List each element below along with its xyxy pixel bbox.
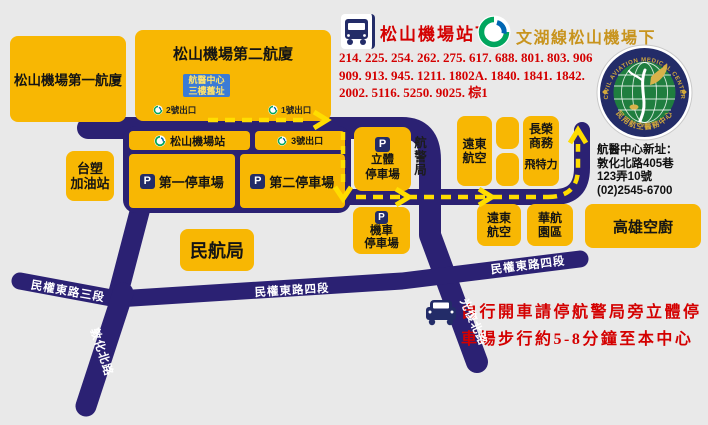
parking-area-container: 松山機場站 3號出口 P 第一停車場 P 第二停車場 — [123, 126, 351, 213]
camc-logo: CIVIL AVIATION MEDICAL CENTER 民用航空醫務中心 — [596, 44, 693, 146]
building-gas-station: 台塑 加油站 — [66, 151, 114, 201]
gas-line1: 台塑 — [77, 161, 103, 176]
cal-line1: 華航 — [538, 211, 562, 225]
road-label-minquan-e3: 民權東路三段 — [25, 276, 111, 306]
old-site-box: 航醫中心 三樓舊址 — [183, 74, 230, 97]
bus-routes-line2: 909. 913. 945. 1211. 1802A. 1840. 1841. … — [339, 67, 593, 85]
route-arrow-mid-1 — [396, 189, 409, 205]
multilevel-line2: 停車場 — [365, 169, 400, 182]
building-small-block-1 — [496, 117, 519, 149]
metro-icon — [277, 136, 287, 146]
parking-icon: P — [375, 211, 388, 224]
building-kaohsiung-catering: 高雄空廚 — [585, 204, 701, 248]
building-fareast-air-bottom: 遠東 航空 — [477, 204, 521, 246]
parking-lot1: P 第一停車場 — [129, 154, 235, 208]
building-moto-parking: P 機車 停車場 — [353, 207, 410, 254]
eva-line2: 商務 — [529, 137, 553, 151]
parking-lot2-label: 第二停車場 — [269, 172, 334, 191]
address-line1: 航醫中心新址： — [597, 144, 678, 158]
route-arrow-up — [570, 130, 586, 143]
building-terminal2: 松山機場第二航廈 航醫中心 三樓舊址 2號出口 1號出口 — [135, 30, 331, 121]
kaohsiung-label: 高雄空廚 — [613, 216, 673, 237]
building-fareast-air-top: 遠東 航空 — [457, 116, 492, 186]
bus-route-numbers: 214. 225. 254. 262. 275. 617. 688. 801. … — [339, 49, 593, 102]
building-small-block-2 — [496, 153, 519, 186]
parking-icon: P — [375, 137, 390, 152]
multilevel-line1: 立體 — [371, 154, 394, 167]
address-line4: (02)2545-6700 — [597, 185, 678, 199]
road-label-dunhua-n: 敦化北路 — [85, 321, 119, 383]
fareast-bottom-line1: 遠東 — [487, 211, 511, 225]
terminal1-label: 松山機場第一航廈 — [14, 69, 122, 89]
caa-label: 民航局 — [190, 237, 244, 263]
new-address-block: 航醫中心新址： 敦化北路405巷 123弄10號 (02)2545-6700 — [597, 144, 678, 198]
parking-icon: P — [250, 174, 265, 189]
parking-lot1-label: 第一停車場 — [159, 172, 224, 191]
building-terminal1: 松山機場第一航廈 — [10, 36, 126, 122]
metro-icon — [154, 135, 166, 147]
old-site-line2: 三樓舊址 — [188, 86, 224, 97]
exit3-cell: 3號出口 — [255, 131, 345, 150]
exit2-label: 2號出口 — [166, 104, 196, 116]
moto-line2: 停車場 — [364, 238, 399, 251]
building-multilevel-parking: P 立體 停車場 — [354, 127, 411, 191]
road-connector-southwest — [117, 210, 140, 298]
car-icon — [424, 297, 458, 332]
bus-icon — [341, 14, 375, 49]
metro-icon — [268, 105, 278, 115]
metro-station-cell: 松山機場站 — [129, 131, 250, 150]
building-eva-fitel: 長榮 商務 飛特力 — [523, 116, 559, 186]
exit1: 1號出口 — [268, 104, 311, 116]
parking-icon: P — [140, 174, 155, 189]
driving-note-line2: 車場步行約5-8分鐘至本中心 — [461, 325, 693, 349]
metro-icon — [153, 105, 163, 115]
road-label-minquan-e4-right: 民權東路四段 — [487, 252, 568, 278]
aviation-police-label: 航警局 — [413, 137, 428, 178]
fareast-bottom-line2: 航空 — [487, 225, 511, 239]
road-label-minquan-e4-left: 民權東路四段 — [252, 280, 333, 301]
route-arrow-mid-2 — [479, 189, 492, 205]
parking-lot2: P 第二停車場 — [240, 154, 346, 208]
metro-station-label: 松山機場站 — [170, 133, 225, 149]
fitel-label: 飛特力 — [525, 159, 558, 173]
eva-line1: 長榮 — [529, 123, 553, 137]
exit1-label: 1號出口 — [281, 104, 311, 116]
address-line2: 敦化北路405巷 — [597, 158, 678, 172]
address-line3: 123弄10號 — [597, 171, 678, 185]
exit3-label: 3號出口 — [291, 134, 323, 147]
building-china-airlines-park: 華航 園區 — [527, 204, 573, 246]
driving-note-line1: 自行開車請停航警局旁立體停 — [461, 298, 702, 322]
bus-routes-line1: 214. 225. 254. 262. 275. 617. 688. 801. … — [339, 49, 593, 67]
exit2: 2號出口 — [153, 104, 196, 116]
bus-routes-line3: 2002. 5116. 5250. 9025. 棕1 — [339, 84, 593, 102]
old-site-line1: 航醫中心 — [188, 75, 224, 86]
building-caa: 民航局 — [180, 229, 254, 271]
gas-line2: 加油站 — [70, 176, 109, 191]
fareast-top-line2: 航空 — [462, 151, 486, 165]
cal-line2: 園區 — [538, 225, 562, 239]
moto-line1: 機車 — [370, 225, 393, 238]
airport-access-map: 松山機場站 3號出口 P 第一停車場 P 第二停車場 松山機場 — [0, 0, 708, 425]
terminal2-label: 松山機場第二航廈 — [135, 43, 331, 64]
fareast-top-line1: 遠東 — [462, 137, 486, 151]
